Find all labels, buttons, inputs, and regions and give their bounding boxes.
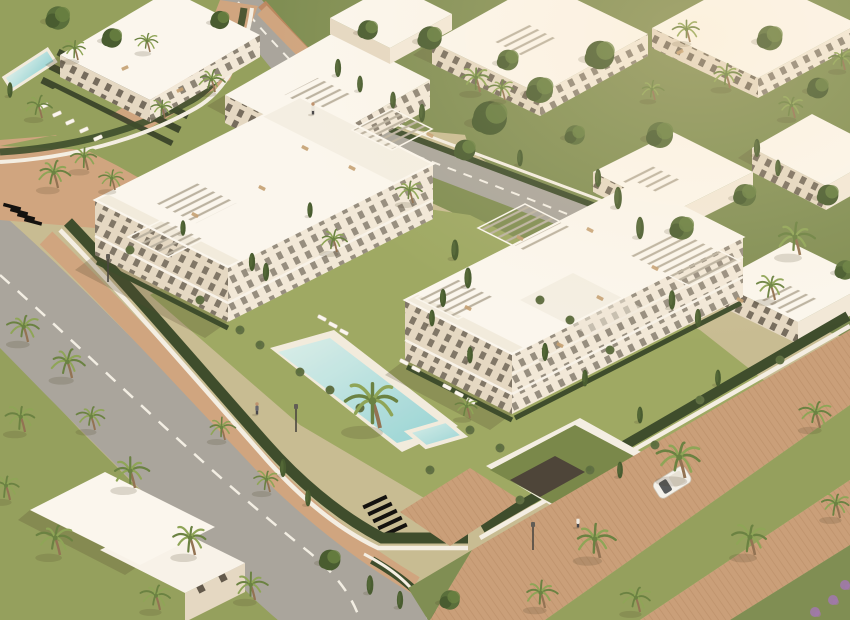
warm-tint-overlay: [0, 0, 850, 620]
aerial-render-scene: [0, 0, 850, 620]
render-canvas: [0, 0, 850, 620]
